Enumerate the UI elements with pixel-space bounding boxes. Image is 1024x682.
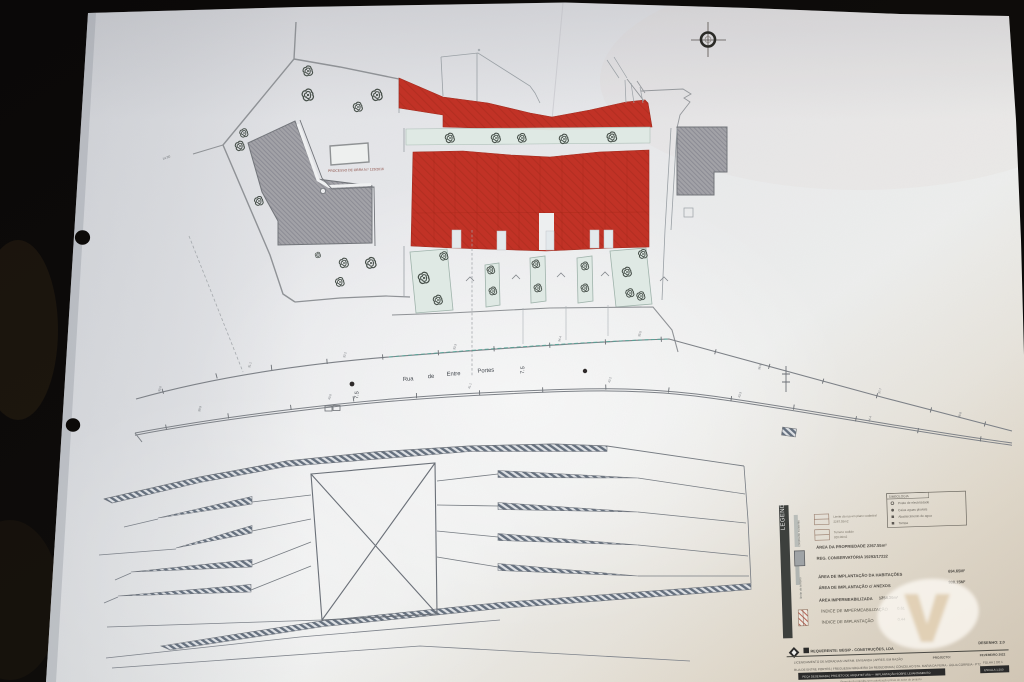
svg-text:Rua: Rua: [403, 376, 415, 383]
svg-text:limite de terreno: limite de terreno: [798, 577, 803, 599]
svg-text:Terreno cedido: Terreno cedido: [834, 530, 854, 535]
svg-text:Portes: Portes: [477, 368, 494, 375]
svg-text:ESCALA 1:200: ESCALA 1:200: [984, 667, 1004, 672]
svg-text:de: de: [428, 374, 435, 380]
svg-text:7.5: 7.5: [354, 391, 361, 399]
svg-text:2267.55m2: 2267.55m2: [833, 519, 848, 523]
svg-text:Tampa: Tampa: [898, 521, 908, 525]
svg-text:FOLHA 1 DE 1: FOLHA 1 DE 1: [983, 660, 1003, 665]
svg-text:694.65M²: 694.65M²: [948, 568, 966, 574]
svg-text:920.00m2: 920.00m2: [834, 535, 848, 539]
svg-text:LEGENDA: LEGENDA: [780, 499, 787, 531]
svg-text:FEVEREIRO 2022: FEVEREIRO 2022: [980, 652, 1006, 657]
svg-text:7.5: 7.5: [520, 366, 526, 374]
svg-text:construido existente: construido existente: [796, 520, 801, 547]
svg-text:Entre: Entre: [446, 371, 460, 378]
svg-text:SIMBOLOGIA: SIMBOLOGIA: [889, 494, 910, 499]
svg-text:PROJECTO:: PROJECTO:: [933, 655, 951, 660]
svg-text:DESENHO: 2.0: DESENHO: 2.0: [978, 640, 1004, 645]
